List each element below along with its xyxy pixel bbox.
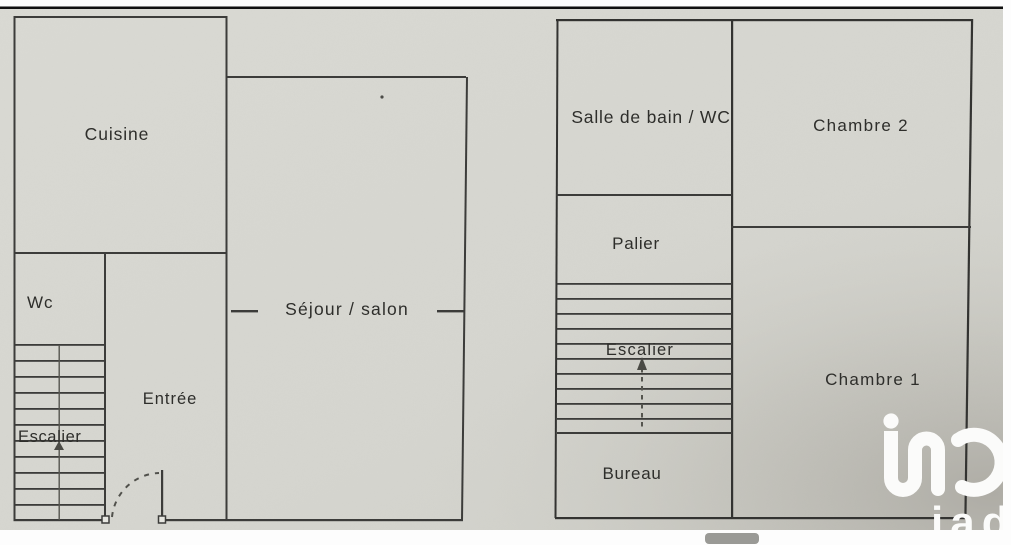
svg-text:Escalier: Escalier bbox=[606, 341, 674, 359]
svg-text:Séjour / salon: Séjour / salon bbox=[285, 299, 409, 319]
svg-text:Escalier: Escalier bbox=[18, 428, 82, 446]
svg-text:Salle de bain / WC: Salle de bain / WC bbox=[571, 107, 730, 127]
svg-text:Chambre 1: Chambre 1 bbox=[825, 370, 921, 389]
svg-text:Entrée: Entrée bbox=[143, 390, 198, 408]
svg-text:Bureau: Bureau bbox=[602, 464, 661, 483]
svg-text:Chambre 2: Chambre 2 bbox=[813, 116, 909, 135]
svg-text:Cuisine: Cuisine bbox=[85, 124, 150, 144]
svg-text:Palier: Palier bbox=[612, 234, 660, 253]
svg-text:Wc: Wc bbox=[27, 293, 54, 312]
